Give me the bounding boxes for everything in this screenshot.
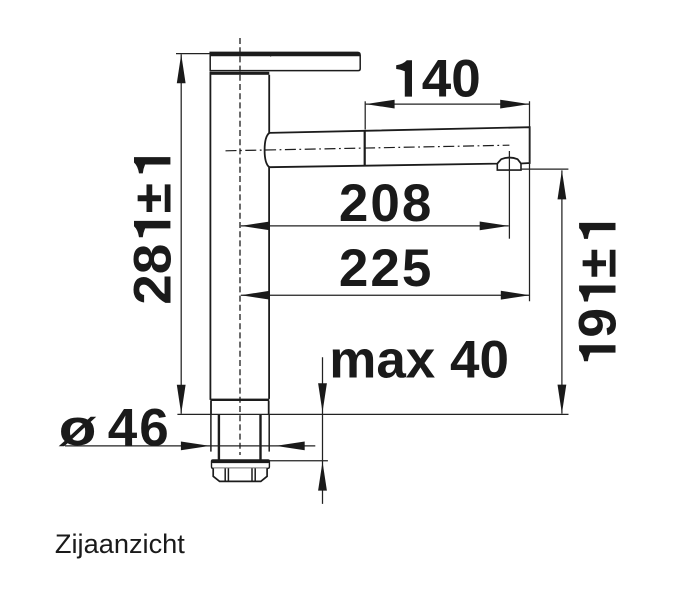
svg-text:40: 40 [422, 50, 481, 109]
svg-text:±: ± [569, 248, 628, 278]
svg-text:46: 46 [108, 399, 171, 458]
svg-text:9: 9 [569, 308, 628, 338]
svg-text:225: 225 [339, 239, 433, 298]
svg-text:28: 28 [123, 244, 182, 305]
svg-text:208: 208 [339, 174, 433, 233]
svg-text:max 40: max 40 [329, 330, 509, 389]
svg-text:ø: ø [59, 400, 97, 457]
svg-text:Zijaanzicht: Zijaanzicht [55, 528, 185, 559]
svg-text:±: ± [123, 183, 182, 213]
